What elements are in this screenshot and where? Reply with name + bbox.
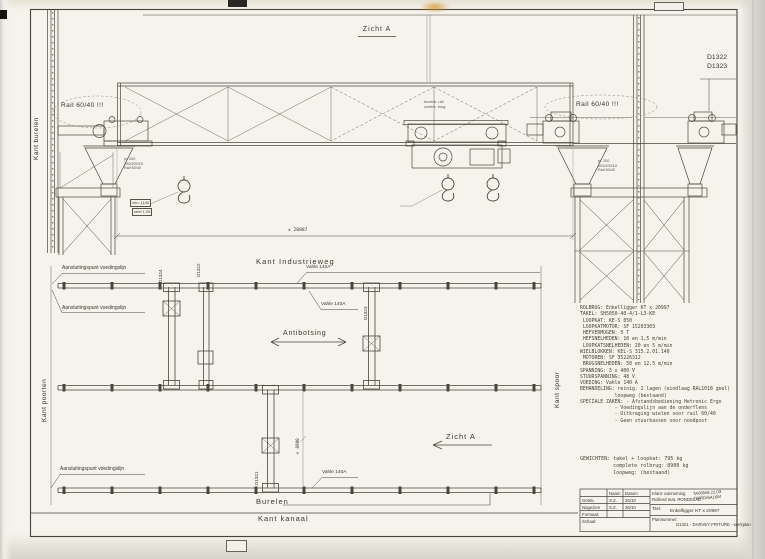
rail-label-right: Rail 60/40 !!! xyxy=(576,101,619,108)
titleblock-row1-naam: S.Z. xyxy=(609,498,617,503)
specs-block: ROLBRUG: Enkelligger KT x 20997 TAKEL: S… xyxy=(580,306,730,425)
elevation-mid-note: bovenk. rail onderk. brug xyxy=(424,100,445,109)
funnel-note-right: pl. 200 200/100/10 Rail 60/40 xyxy=(598,159,617,173)
corner-mark xyxy=(0,10,7,19)
ref-label-d1322: D1322 xyxy=(707,54,727,63)
busbar-label-3: Vahle 140A xyxy=(322,470,346,475)
busbar-label-1: Vahle 140A xyxy=(306,265,330,270)
titleblock-datum-header: Datum xyxy=(625,491,638,496)
crane-id-d1322: D1322 xyxy=(196,253,201,277)
elevation-view-title: Zicht A xyxy=(358,26,396,33)
elevation-overall-dim: ± 20887 xyxy=(288,228,307,233)
titleblock-row2-label: Nagezien xyxy=(582,505,600,510)
titleblock: Naam Datum Getek. S.Z. 25/10 Nagezien S.… xyxy=(580,489,737,532)
titleblock-titel-label: Titel: xyxy=(652,506,661,511)
titleblock-naam-header: Naam xyxy=(609,491,620,496)
crane-id-d1321: D1321 xyxy=(254,463,259,485)
titleblock-klant-line1: Klant: aanneming xyxy=(652,491,685,496)
funnel-note-left: pl. 200 200/100/10 Rail 60/40 xyxy=(124,157,143,171)
rail-label-left: Rail 60/40 !!! xyxy=(61,102,104,109)
weights-block: GEWICHTEN: takel + loopkat: 795 kg compl… xyxy=(580,456,688,476)
titleblock-handwritten-note: TA06N/6.11.03 TWRD/6A16M xyxy=(693,489,722,501)
side-label-kant-poorten: Kant poorten xyxy=(41,352,48,422)
punch-tab-top xyxy=(228,0,247,7)
crane-id-d1323: D1323 xyxy=(363,300,368,320)
titleblock-plan-label: Plannummer: xyxy=(652,517,678,522)
titleblock-plan-value: D1321 - DARVEY FRITURE - werkplan xyxy=(676,522,751,527)
feedpoint-label-1: Aansluitingspunt voedingslijn xyxy=(62,265,126,271)
titleblock-titel-value: Enkelligger KT x 20997 xyxy=(670,509,720,514)
hook-note-1: min. 1190 xyxy=(130,199,151,207)
ref-labels-block: D1322 D1323 xyxy=(707,54,727,71)
side-label-kant-spoor: Kant spoor xyxy=(554,352,561,408)
titleblock-row3-label: Formaat: xyxy=(582,512,599,517)
titleblock-row1-label: Getek. xyxy=(582,498,595,503)
titleblock-row2-naam: S.Z. xyxy=(609,505,617,510)
titleblock-row4-label: Schaal: xyxy=(582,519,596,524)
hook-note-2: tafel 1.05 xyxy=(132,208,152,216)
feedpoint-label-3: Aansluitingspunt voedingslijn xyxy=(60,466,124,472)
punch-tab-bottom xyxy=(227,541,247,552)
scan-smudge xyxy=(420,1,450,13)
side-label-kant-burelen: Kant burelen xyxy=(33,90,40,160)
feedpoint-label-2: Aansluitingspunt voedingslijn xyxy=(62,305,126,311)
busbar-label-2: Vahle 140A xyxy=(321,302,345,307)
scanned-drawing-paper: Zicht A D1322 D1323 Rail 60/40 !!! Rail … xyxy=(0,0,765,559)
punch-tab-top-right xyxy=(655,3,684,11)
ref-label-d1323: D1323 xyxy=(707,63,727,72)
crane-id-d1324: D1324 xyxy=(158,261,163,283)
titleblock-row2-datum: 25/10 xyxy=(625,505,636,510)
bottom-label-kant-kanaal: Kant kanaal xyxy=(258,514,309,523)
anticollision-label: Antibotsing xyxy=(283,330,326,337)
titleblock-row1-datum: 25/10 xyxy=(625,498,636,503)
bottom-label-burelen: Burelen xyxy=(256,497,289,506)
plan-view-arrow-label: Zicht A xyxy=(446,432,476,441)
plan-dim-label: ± 8900 xyxy=(295,428,300,456)
